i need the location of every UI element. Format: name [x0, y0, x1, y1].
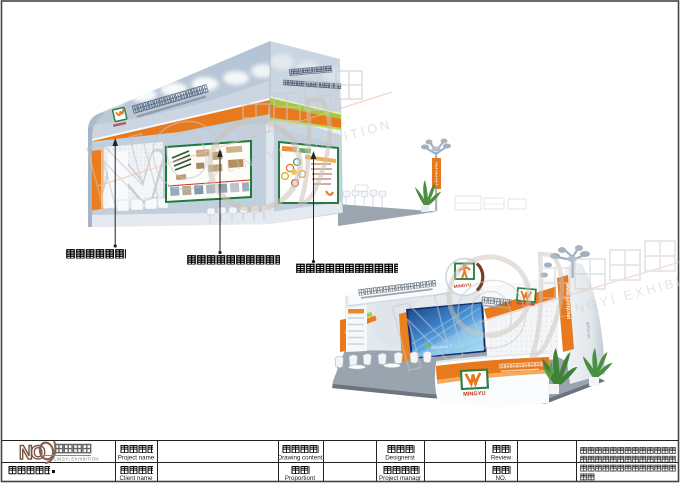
svg-text:gzmy.net: gzmy.net [586, 322, 592, 339]
svg-text:Review: Review [491, 455, 512, 462]
svg-text:NO.: NO. [495, 475, 506, 482]
svg-text:LINGYI EXHIBITION: LINGYI EXHIBITION [54, 457, 99, 462]
svg-text:Client name: Client name [119, 475, 153, 482]
svg-text:MINGYU: MINGYU [463, 391, 486, 398]
svg-text:Designerst: Designerst [385, 455, 415, 462]
svg-text:Proportiont: Proportiont [285, 475, 316, 482]
svg-text:Drawing content: Drawing content [278, 455, 323, 462]
svg-text:Project managr: Project managr [379, 475, 421, 482]
svg-text:Project name: Project name [118, 455, 155, 462]
